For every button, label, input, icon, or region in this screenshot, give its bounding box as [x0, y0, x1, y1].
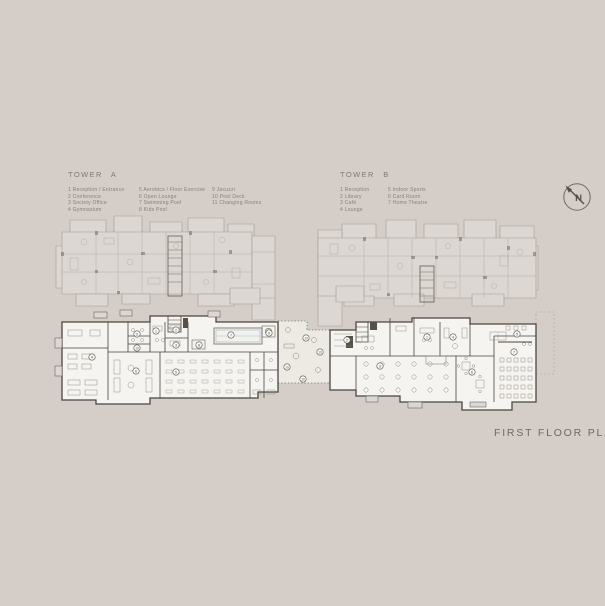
room-marker: 10 — [284, 364, 290, 370]
room-marker: 6 — [133, 368, 139, 374]
room-marker: 4 — [450, 334, 456, 340]
room-marker: 11 — [134, 331, 140, 337]
room-marker: 1 — [153, 328, 159, 334]
room-marker: 9 — [266, 330, 272, 336]
room-marker: 10 — [300, 376, 306, 382]
floor-plan-drawing: 1234567891110101010101234567 — [0, 0, 605, 606]
room-marker: 1 — [424, 334, 430, 340]
tower-a-first-floor — [55, 310, 278, 404]
svg-text:11: 11 — [135, 332, 139, 336]
svg-text:10: 10 — [285, 365, 289, 369]
room-marker: 10 — [303, 335, 309, 341]
room-marker: 5 — [514, 331, 520, 337]
room-marker: 8 — [196, 342, 202, 348]
plan-caption: FIRST FLOOR PLAN — [494, 427, 605, 439]
floor-plan-page: TOWER A 1 Reception / Entrance 2 Confere… — [0, 0, 605, 606]
svg-text:10: 10 — [135, 346, 139, 350]
tower-a-left-piers — [55, 338, 62, 376]
swimming-pool — [214, 328, 262, 344]
svg-text:10: 10 — [301, 377, 305, 381]
room-marker: 7 — [511, 349, 517, 355]
room-marker: 3 — [173, 342, 179, 348]
svg-text:10: 10 — [318, 350, 322, 354]
room-marker: 2 — [344, 337, 350, 343]
room-marker: 4 — [89, 354, 95, 360]
tower-b-first-floor — [330, 318, 536, 410]
room-marker: 3 — [377, 363, 383, 369]
room-marker: 7 — [228, 332, 234, 338]
room-marker: 2 — [173, 327, 179, 333]
room-marker: 6 — [469, 369, 475, 375]
room-marker: 5 — [173, 369, 179, 375]
svg-text:10: 10 — [304, 336, 308, 340]
room-marker: 10 — [134, 345, 140, 351]
room-marker: 10 — [317, 349, 323, 355]
ghost-tower-a — [56, 216, 275, 320]
